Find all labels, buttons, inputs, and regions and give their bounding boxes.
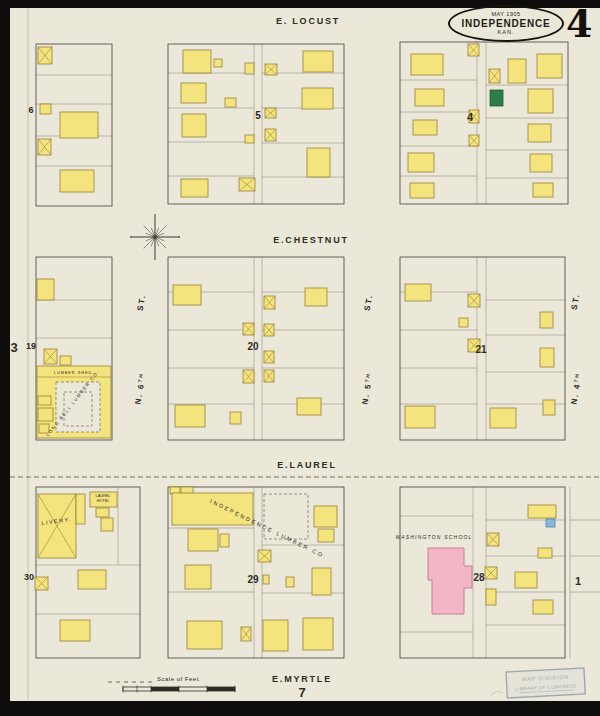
building [410,183,434,198]
building [60,356,71,365]
building [286,577,294,587]
building [302,88,333,109]
adjacent-sheet-number: 7 [298,685,305,700]
building [508,59,526,83]
building [486,589,496,605]
building [314,506,337,527]
block-number: 29 [247,574,259,585]
building-special-blue [546,519,555,527]
building [413,120,437,135]
building [182,114,206,137]
building [528,89,553,113]
title-oval: MAY 1905 INDEPENDENCE KAN. [448,5,564,42]
building [60,112,98,138]
map-state: KAN. [498,30,515,36]
street-label-e-chestnut: E.CHESTNUT [273,235,349,245]
building [540,348,554,367]
building [40,104,51,114]
block-number: 20 [247,341,259,352]
building [540,312,553,328]
building [188,529,218,551]
building-special-green [490,90,503,106]
building [38,408,53,421]
building [245,135,254,143]
building [307,148,330,177]
building [318,529,334,542]
map-city: INDEPENDENCE [461,19,550,29]
building [187,621,222,649]
laurel-hotel-label-1: LAUREL [96,494,111,498]
building [220,534,229,547]
building [411,54,443,75]
sanborn-map-page: E. LOCUSTE.CHESTNUTE.LAURELE.MYRTLEST.N.… [0,0,600,716]
building [490,408,516,428]
adjacent-sheet-number: 1 [575,575,581,587]
compass-dot [130,236,132,238]
lumber-shed-label: LUMBER SHED [54,371,92,375]
building [263,575,269,584]
building [530,154,552,172]
building [538,548,552,558]
building [185,565,211,589]
building [78,570,106,589]
scale-of-feet-label: Scale of Feet. [157,676,201,682]
building [175,405,205,427]
block-number: 28 [473,572,485,583]
block-number: 19 [26,341,36,351]
building [173,285,201,305]
building [528,124,551,142]
map-paper [10,8,600,701]
building [230,412,241,424]
building [214,59,222,67]
building [38,396,51,405]
building [263,620,288,651]
building [415,89,444,106]
building [37,279,54,300]
block-number: 5 [255,110,261,121]
building [405,406,435,428]
library-stamp: MAP DIVISIONLIBRARY OF CONGRESS [506,668,585,698]
street-label-e-laurel: E.LAUREL [277,460,336,470]
building [312,568,331,595]
compass-dot [178,236,180,238]
block-number: 21 [475,344,487,355]
building [303,618,333,650]
sanborn-map-canvas: E. LOCUSTE.CHESTNUTE.LAURELE.MYRTLEST.N.… [0,0,600,716]
building [303,51,333,72]
block-number: 30 [24,572,34,582]
building [297,398,321,415]
building [245,63,254,74]
building [225,98,236,107]
building [60,620,90,641]
building [528,505,556,518]
building [537,54,562,78]
building [459,318,468,327]
building [305,288,327,306]
building [533,183,553,197]
building [60,170,94,192]
sheet-number: 4 [566,1,592,46]
block-number: 4 [467,111,474,123]
building [543,400,555,415]
scale-bar-segment [207,687,235,691]
map-date: MAY 1905 [491,12,520,18]
building [96,508,109,517]
building [405,284,431,301]
block-number: 6 [28,105,33,115]
scale-bar-segment [151,687,179,691]
building [181,83,206,103]
building [408,153,434,172]
building [515,572,537,588]
street-label-e-myrtle: E.MYRTLE [272,674,332,684]
building [101,518,113,531]
adjacent-sheet-number: 3 [10,340,17,355]
building [181,179,208,197]
street-label-e-locust: E. LOCUST [276,16,340,26]
building [533,600,553,614]
building [183,50,211,73]
building [76,494,85,524]
washington-school-label: WASHINGTON SCHOOL [395,534,472,540]
laurel-hotel-label-2: HOTEL [97,499,110,503]
